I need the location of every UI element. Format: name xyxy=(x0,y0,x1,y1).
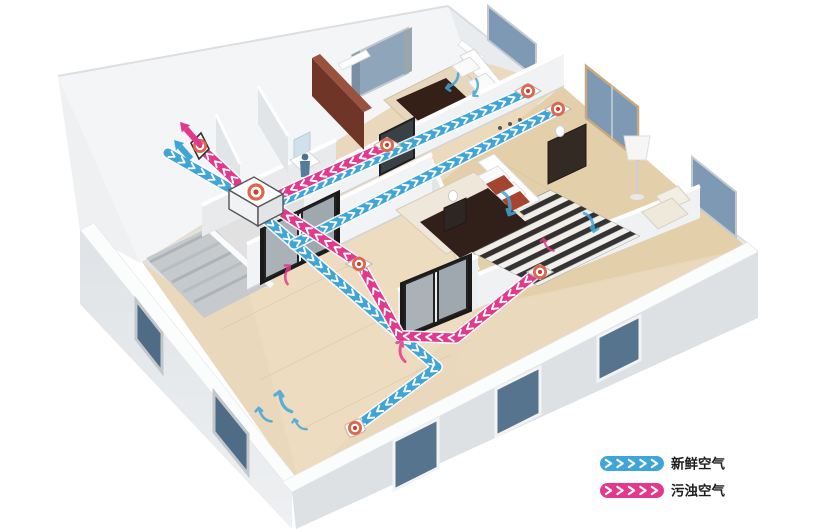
nightstand-lamp xyxy=(449,191,458,202)
legend-fresh-label: 新鲜空气 xyxy=(671,456,725,473)
vent-bullseye-dot xyxy=(357,262,361,266)
person-body xyxy=(300,161,310,177)
unit-bullseye-dot xyxy=(253,189,258,194)
vent-bullseye-dot xyxy=(353,426,357,430)
floor-lamp-base xyxy=(630,194,644,200)
vent-bullseye-dot xyxy=(538,270,542,274)
vent-bullseye-dot xyxy=(385,143,389,147)
vent-bullseye-dot xyxy=(526,89,530,93)
ventilation-diagram: 新鲜空气 污浊空气 xyxy=(0,0,824,529)
floor-lamp-shade xyxy=(624,136,650,160)
vent-bullseye-dot xyxy=(556,107,560,111)
bedroom1-window-curtain xyxy=(404,27,412,75)
house-cutaway-svg: 新鲜空气 污浊空气 xyxy=(0,0,824,529)
legend-exhaust-label: 污浊空气 xyxy=(671,483,725,500)
dresser-lamp xyxy=(556,126,565,137)
person xyxy=(302,154,309,161)
legend: 新鲜空气 污浊空气 xyxy=(600,456,725,500)
